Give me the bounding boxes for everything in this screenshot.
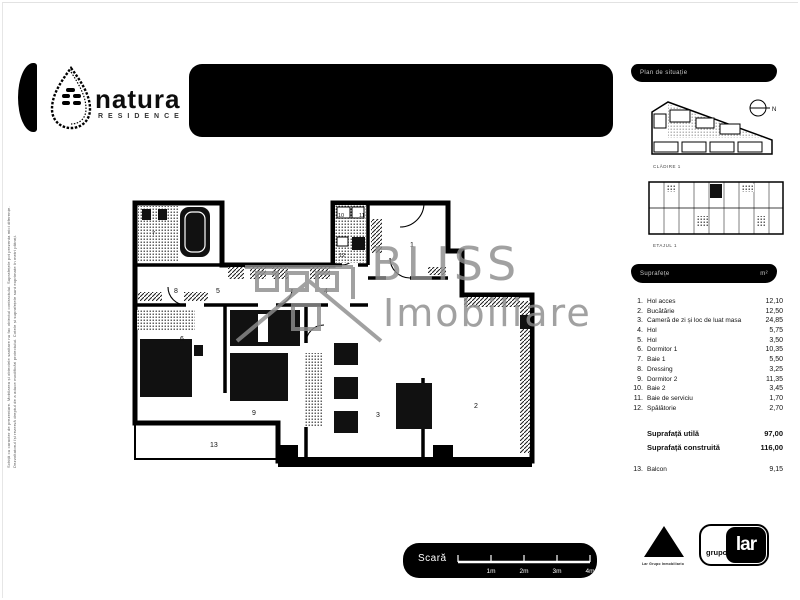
scale-tick-1m: 1m: [486, 568, 495, 575]
area-table: 1.Hol acces12,10 2.Bucătărie12,50 3.Came…: [630, 297, 783, 413]
table-row: 6.Dormitor 110,35: [630, 345, 783, 355]
room-number-4: 4: [324, 288, 328, 295]
scale-tick-4m: 4m: [585, 568, 594, 575]
lar-box: lar: [726, 527, 766, 563]
compass-icon: N: [750, 100, 776, 116]
table-row: 9.Dormitor 211,35: [630, 375, 783, 385]
logo-bracket-shape: [18, 63, 37, 132]
room-number-2: 2: [474, 403, 478, 410]
brand-name: natura: [95, 84, 180, 115]
legal-disclaimer: Schiță cu caracter de prezentare. Mobila…: [6, 230, 17, 468]
floor-level-caption: ETAJUL 1: [653, 243, 677, 248]
apartment-floor-plan: 1 2 3 4 5 6 7 8 9 10 11 12 13: [128, 193, 556, 485]
table-row: 12.Spălătorie2,70: [630, 404, 783, 414]
triangle-logo: [642, 524, 686, 560]
grupo-label: grupo: [706, 548, 727, 557]
lar-label: lar: [736, 534, 756, 556]
table-row: 2.Bucătărie12,50: [630, 307, 783, 317]
floor-level-thumbnail: [646, 176, 786, 240]
table-row: 4.Hol5,75: [630, 326, 783, 336]
room-number-13: 13: [210, 442, 218, 449]
total-usable-area: Suprafață utilă97,00: [630, 429, 783, 443]
room-number-11: 11: [359, 213, 365, 219]
table-row: 3.Cameră de zi și loc de luat masa24,85: [630, 316, 783, 326]
site-plan-caption: CLĂDIRE 1: [653, 164, 681, 169]
table-row: 1.Hol acces12,10: [630, 297, 783, 307]
room-number-6: 6: [180, 336, 184, 343]
scale-bar: Scară 1m 2m 3m 4m: [403, 543, 597, 578]
grupo-lar-logo: grupo lar: [699, 524, 769, 566]
site-plan-header-bar: Plan de situație: [631, 64, 777, 82]
balcony-row: 13.Balcon9,15: [630, 465, 783, 475]
scale-tick-3m: 3m: [552, 568, 561, 575]
table-row: 11.Baie de serviciu1,70: [630, 394, 783, 404]
room-number-5: 5: [216, 288, 220, 295]
site-plan-header-label: Plan de situație: [640, 70, 687, 76]
disclaimer-line-2: Dezvoltatorul își rezervă dreptul de a a…: [12, 230, 18, 468]
table-row: 7.Baie 15,50: [630, 355, 783, 365]
areas-header-bar: Suprafețe m²: [631, 264, 777, 283]
scale-label: Scară: [418, 553, 447, 564]
brand-tagline: RESIDENCE: [98, 113, 184, 120]
area-totals: Suprafață utilă97,00 Suprafață construit…: [630, 429, 783, 456]
room-number-10: 10: [338, 213, 344, 219]
room-number-1: 1: [410, 242, 414, 249]
scale-tick-2m: 2m: [519, 568, 528, 575]
leaf-drop-icon: [50, 66, 92, 130]
room-number-9: 9: [252, 410, 256, 417]
areas-header-right: m²: [760, 271, 768, 277]
areas-header-left: Suprafețe: [640, 271, 670, 277]
room-number-12: 12: [339, 253, 345, 259]
room-number-8: 8: [174, 288, 178, 295]
compass-north-label: N: [772, 107, 776, 113]
table-row: 5.Hol3,50: [630, 336, 783, 346]
disclaimer-line-1: Schiță cu caracter de prezentare. Mobila…: [6, 230, 12, 468]
total-built-area: Suprafață construită116,00: [630, 443, 783, 457]
plan-balcony-wall: [135, 423, 278, 459]
table-row: 10.Baie 23,45: [630, 384, 783, 394]
site-plan-thumbnail: N: [646, 92, 786, 166]
triangle-logo-caption: Lar Grupo Inmobiliario: [631, 562, 695, 566]
room-number-3: 3: [376, 412, 380, 419]
scale-ruler: 1m 2m 3m 4m: [452, 543, 597, 578]
room-number-7: 7: [152, 231, 155, 237]
table-row: 8.Dressing3,25: [630, 365, 783, 375]
redacted-title-bar: [189, 64, 613, 137]
